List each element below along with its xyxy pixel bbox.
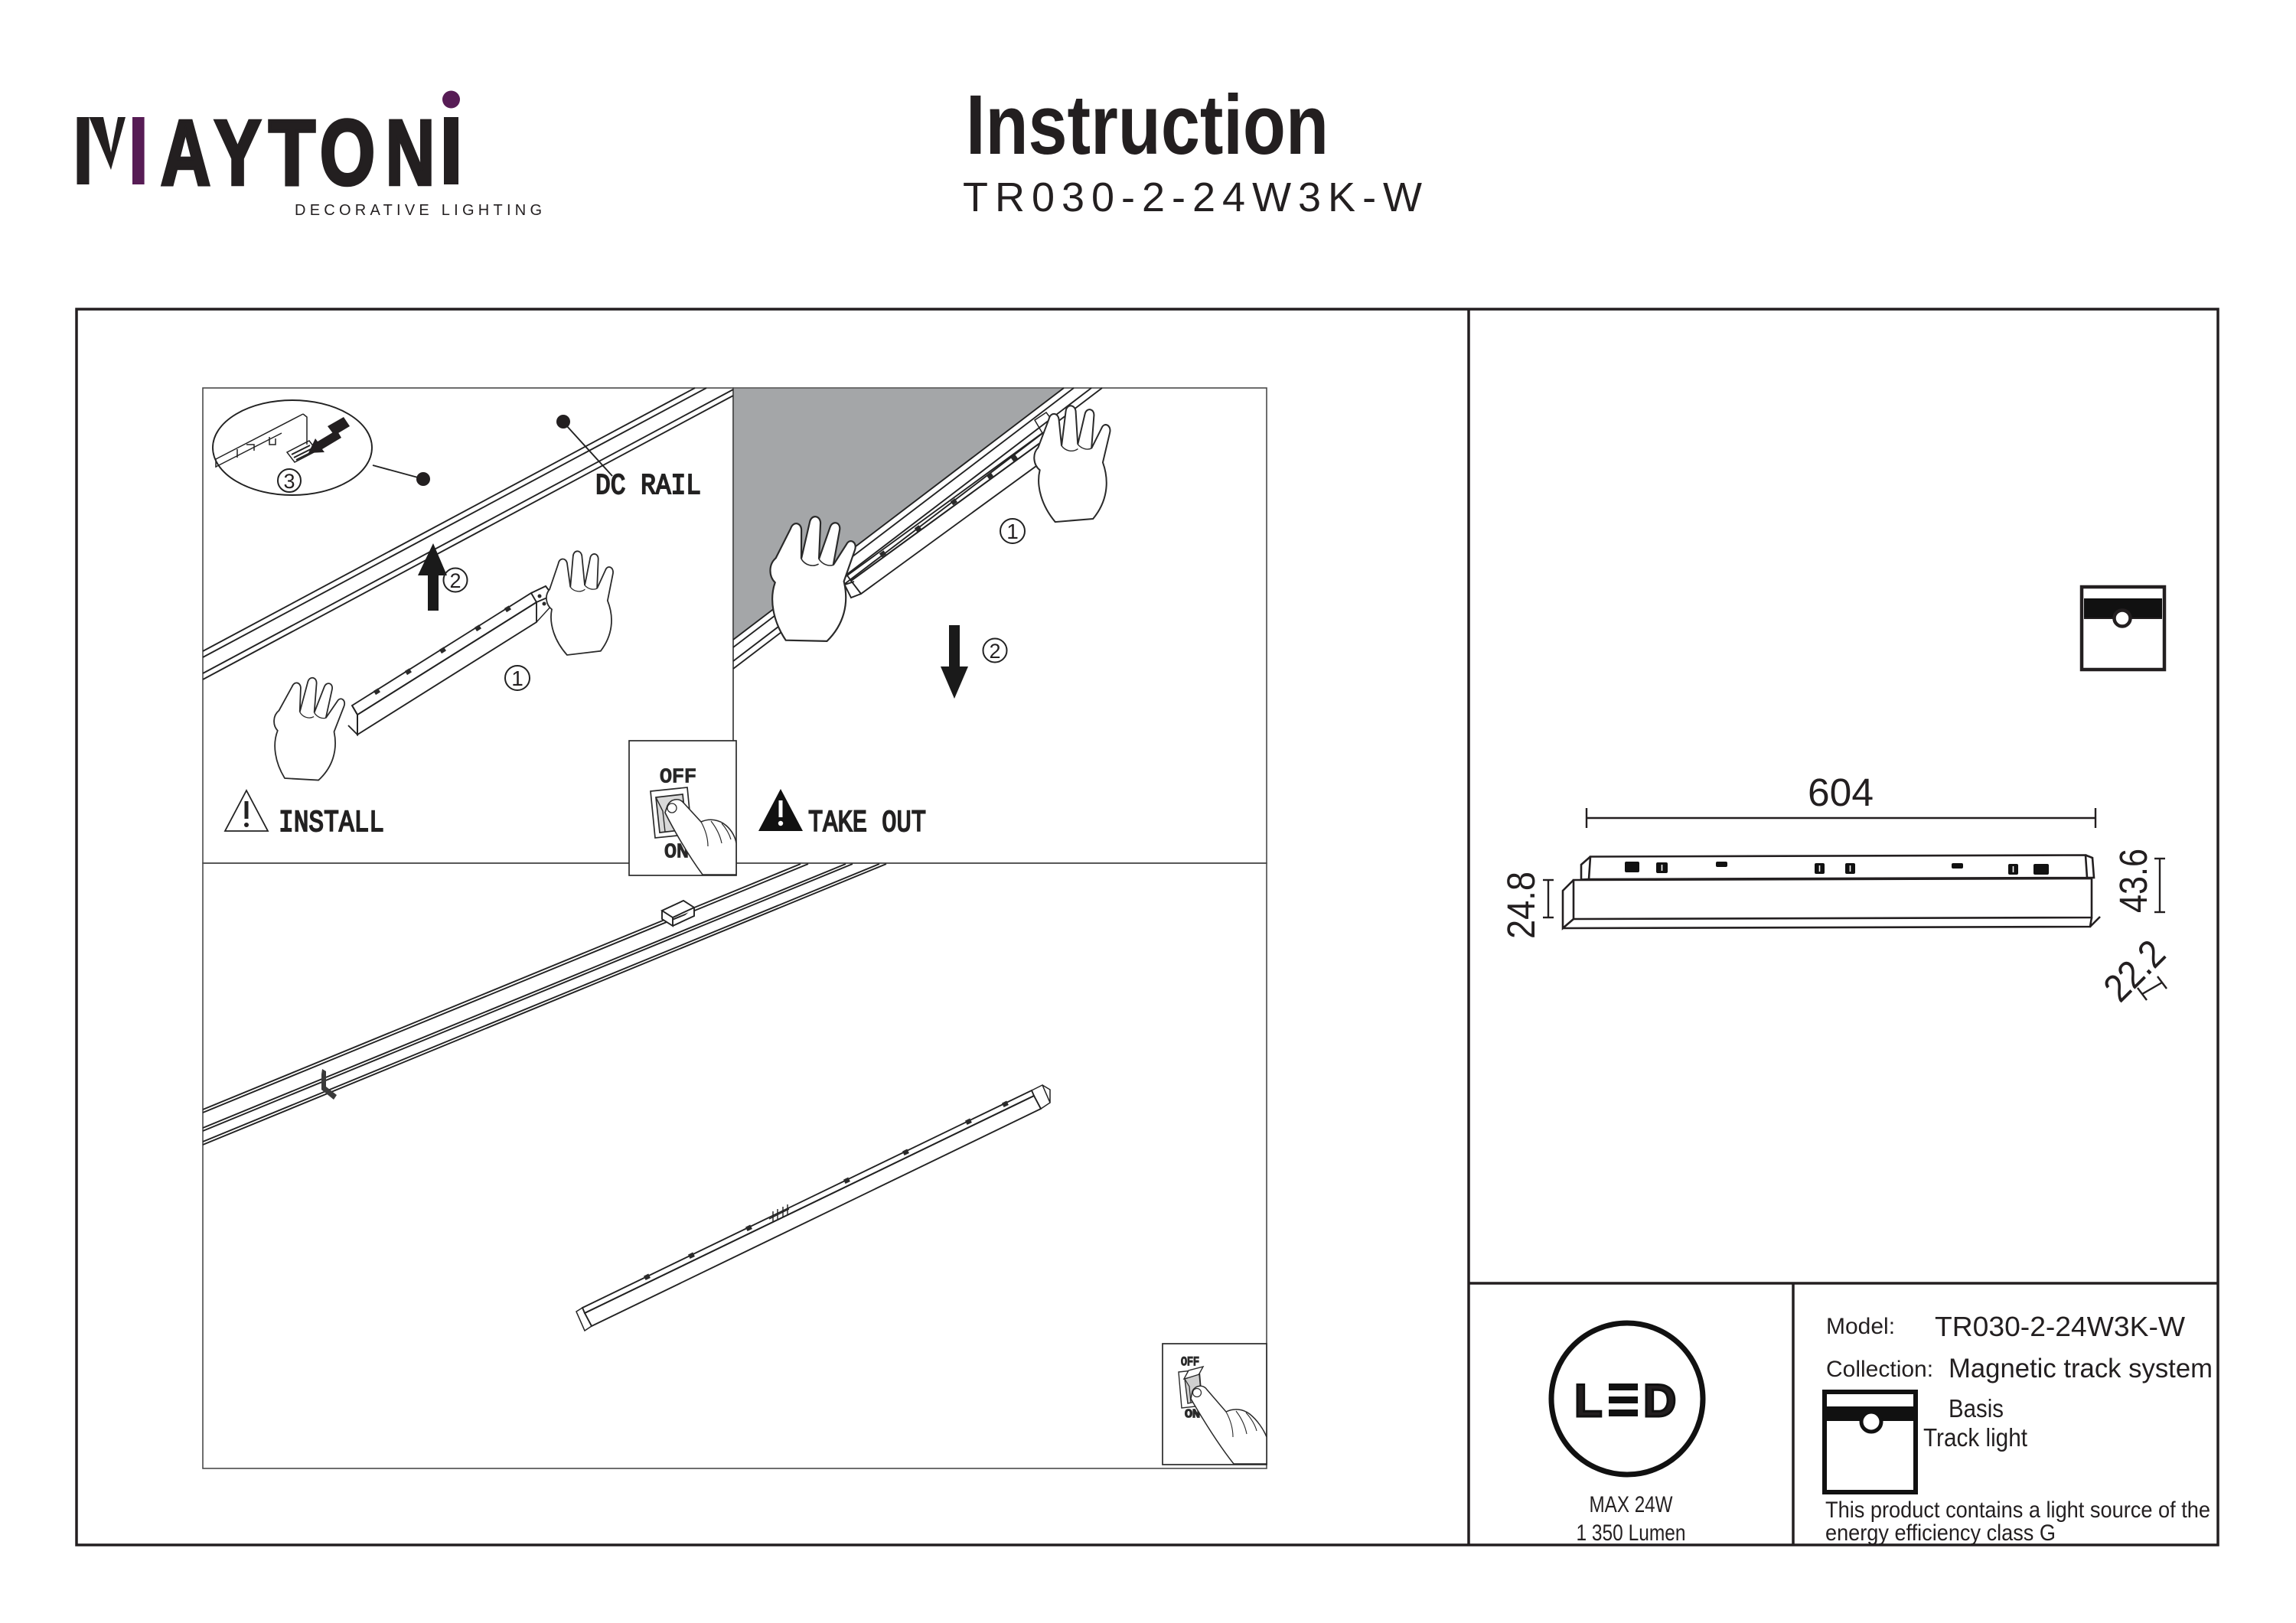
svg-text:T: T <box>269 100 315 204</box>
svg-text:N: N <box>386 100 435 204</box>
svg-text:O: O <box>320 100 375 204</box>
svg-text:24.8: 24.8 <box>1499 872 1543 939</box>
svg-text:Collection:: Collection: <box>1826 1357 1933 1382</box>
svg-text:TR030-2-24W3K-W: TR030-2-24W3K-W <box>1935 1311 2185 1342</box>
svg-text:Y: Y <box>214 100 261 204</box>
svg-text:L: L <box>1574 1375 1603 1426</box>
svg-text:Magnetic track system: Magnetic track system <box>1949 1354 2213 1383</box>
svg-text:TAKE OUT: TAKE OUT <box>808 807 926 841</box>
svg-text:INSTALL: INSTALL <box>279 807 384 841</box>
svg-text:This product contains a light: This product contains a light source of … <box>1825 1498 2210 1523</box>
svg-text:Basis: Basis <box>1949 1394 2004 1423</box>
svg-text:DC RAIL: DC RAIL <box>595 470 701 503</box>
svg-text:Model:: Model: <box>1826 1314 1895 1339</box>
svg-text:3: 3 <box>283 470 295 493</box>
svg-text:1: 1 <box>511 666 523 690</box>
svg-text:2: 2 <box>989 640 1000 663</box>
svg-text:604: 604 <box>1808 771 1874 814</box>
svg-text:energy efficiency class G: energy efficiency class G <box>1825 1520 2056 1546</box>
svg-text:Track light: Track light <box>1923 1423 2027 1452</box>
svg-text:Instruction: Instruction <box>966 78 1329 172</box>
svg-text:D: D <box>1643 1375 1676 1426</box>
svg-text:MAX 24W: MAX 24W <box>1590 1492 1674 1517</box>
svg-text:OFF: OFF <box>660 765 696 788</box>
svg-text:1: 1 <box>1006 520 1019 543</box>
svg-text:A: A <box>161 100 210 204</box>
svg-text:TR030-2-24W3K-W: TR030-2-24W3K-W <box>963 174 1422 220</box>
svg-text:OFF: OFF <box>1181 1355 1199 1369</box>
svg-text:2: 2 <box>449 569 461 592</box>
svg-text:1 350 Lumen: 1 350 Lumen <box>1577 1520 1686 1546</box>
svg-text:43.6: 43.6 <box>2112 849 2155 913</box>
